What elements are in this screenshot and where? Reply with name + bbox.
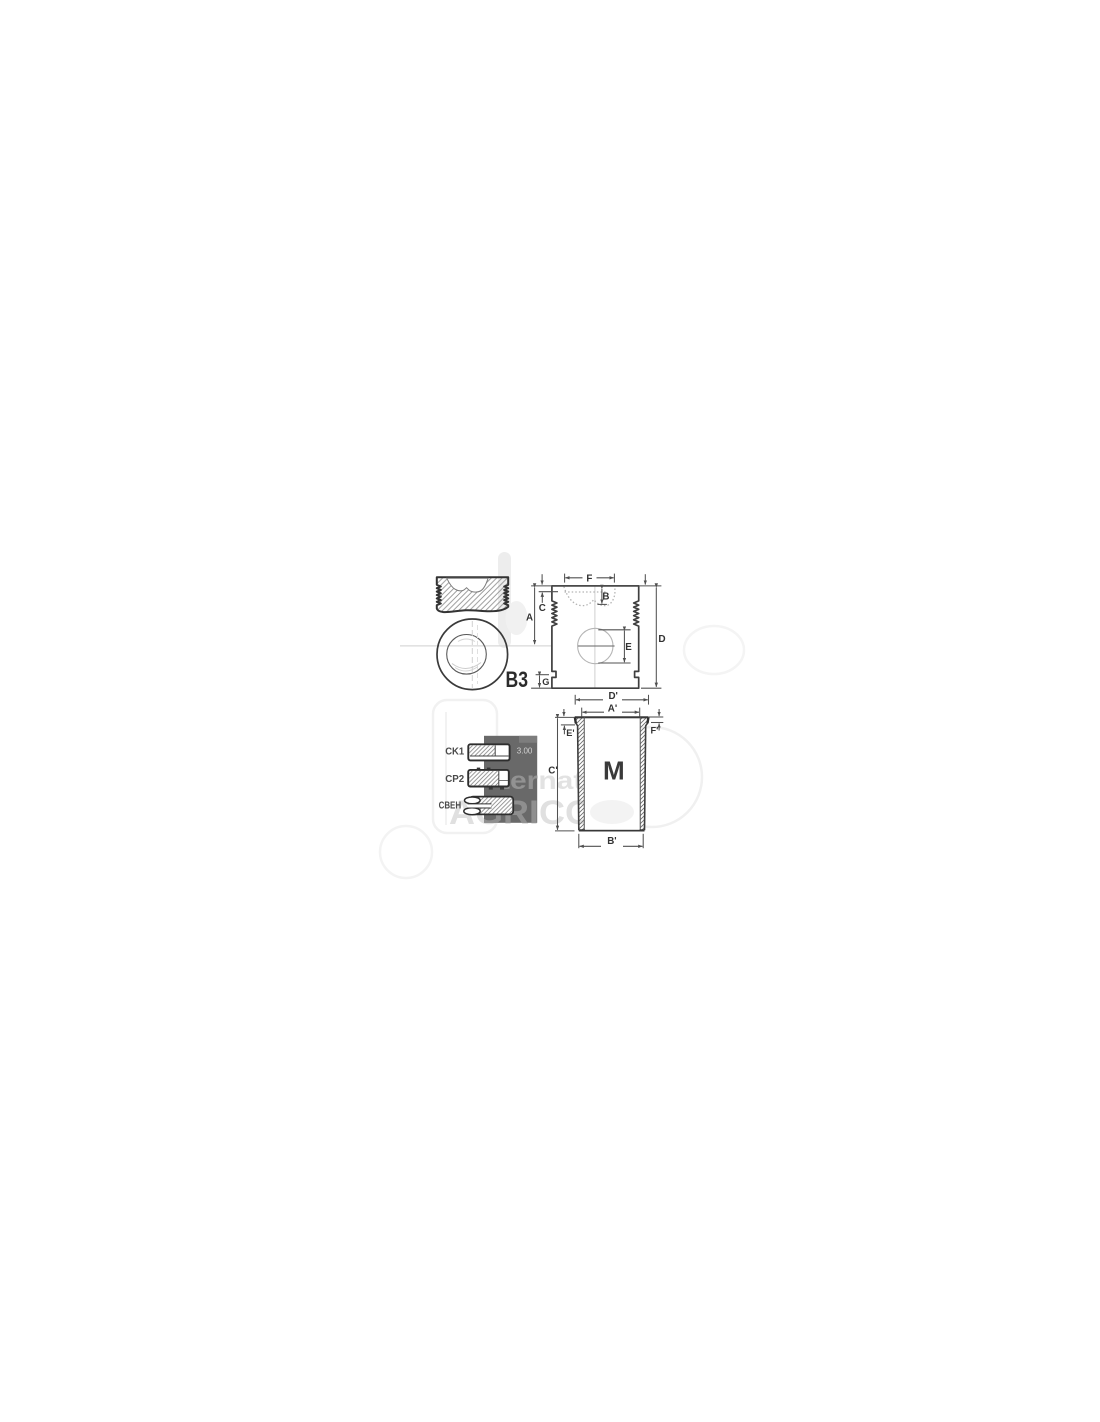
svg-text:B3: B3 (506, 667, 529, 692)
svg-text:F: F (586, 574, 592, 585)
svg-text:A: A (526, 612, 533, 623)
svg-text:CK1: CK1 (445, 747, 464, 758)
svg-text:CBEH: CBEH (439, 801, 462, 812)
svg-text:B: B (602, 592, 609, 603)
svg-text:D: D (658, 634, 665, 645)
svg-text:G: G (542, 677, 549, 687)
svg-text:B': B' (607, 836, 616, 847)
svg-text:C: C (539, 603, 546, 614)
svg-text:C': C' (548, 765, 557, 776)
svg-text:D': D' (608, 691, 617, 702)
svg-text:CP2: CP2 (445, 774, 464, 785)
svg-text:A': A' (608, 703, 617, 714)
svg-text:E': E' (566, 728, 574, 738)
svg-text:M: M (603, 755, 625, 785)
svg-text:E: E (625, 642, 632, 653)
svg-text:3.00: 3.00 (517, 747, 533, 756)
svg-text:F': F' (651, 726, 659, 736)
